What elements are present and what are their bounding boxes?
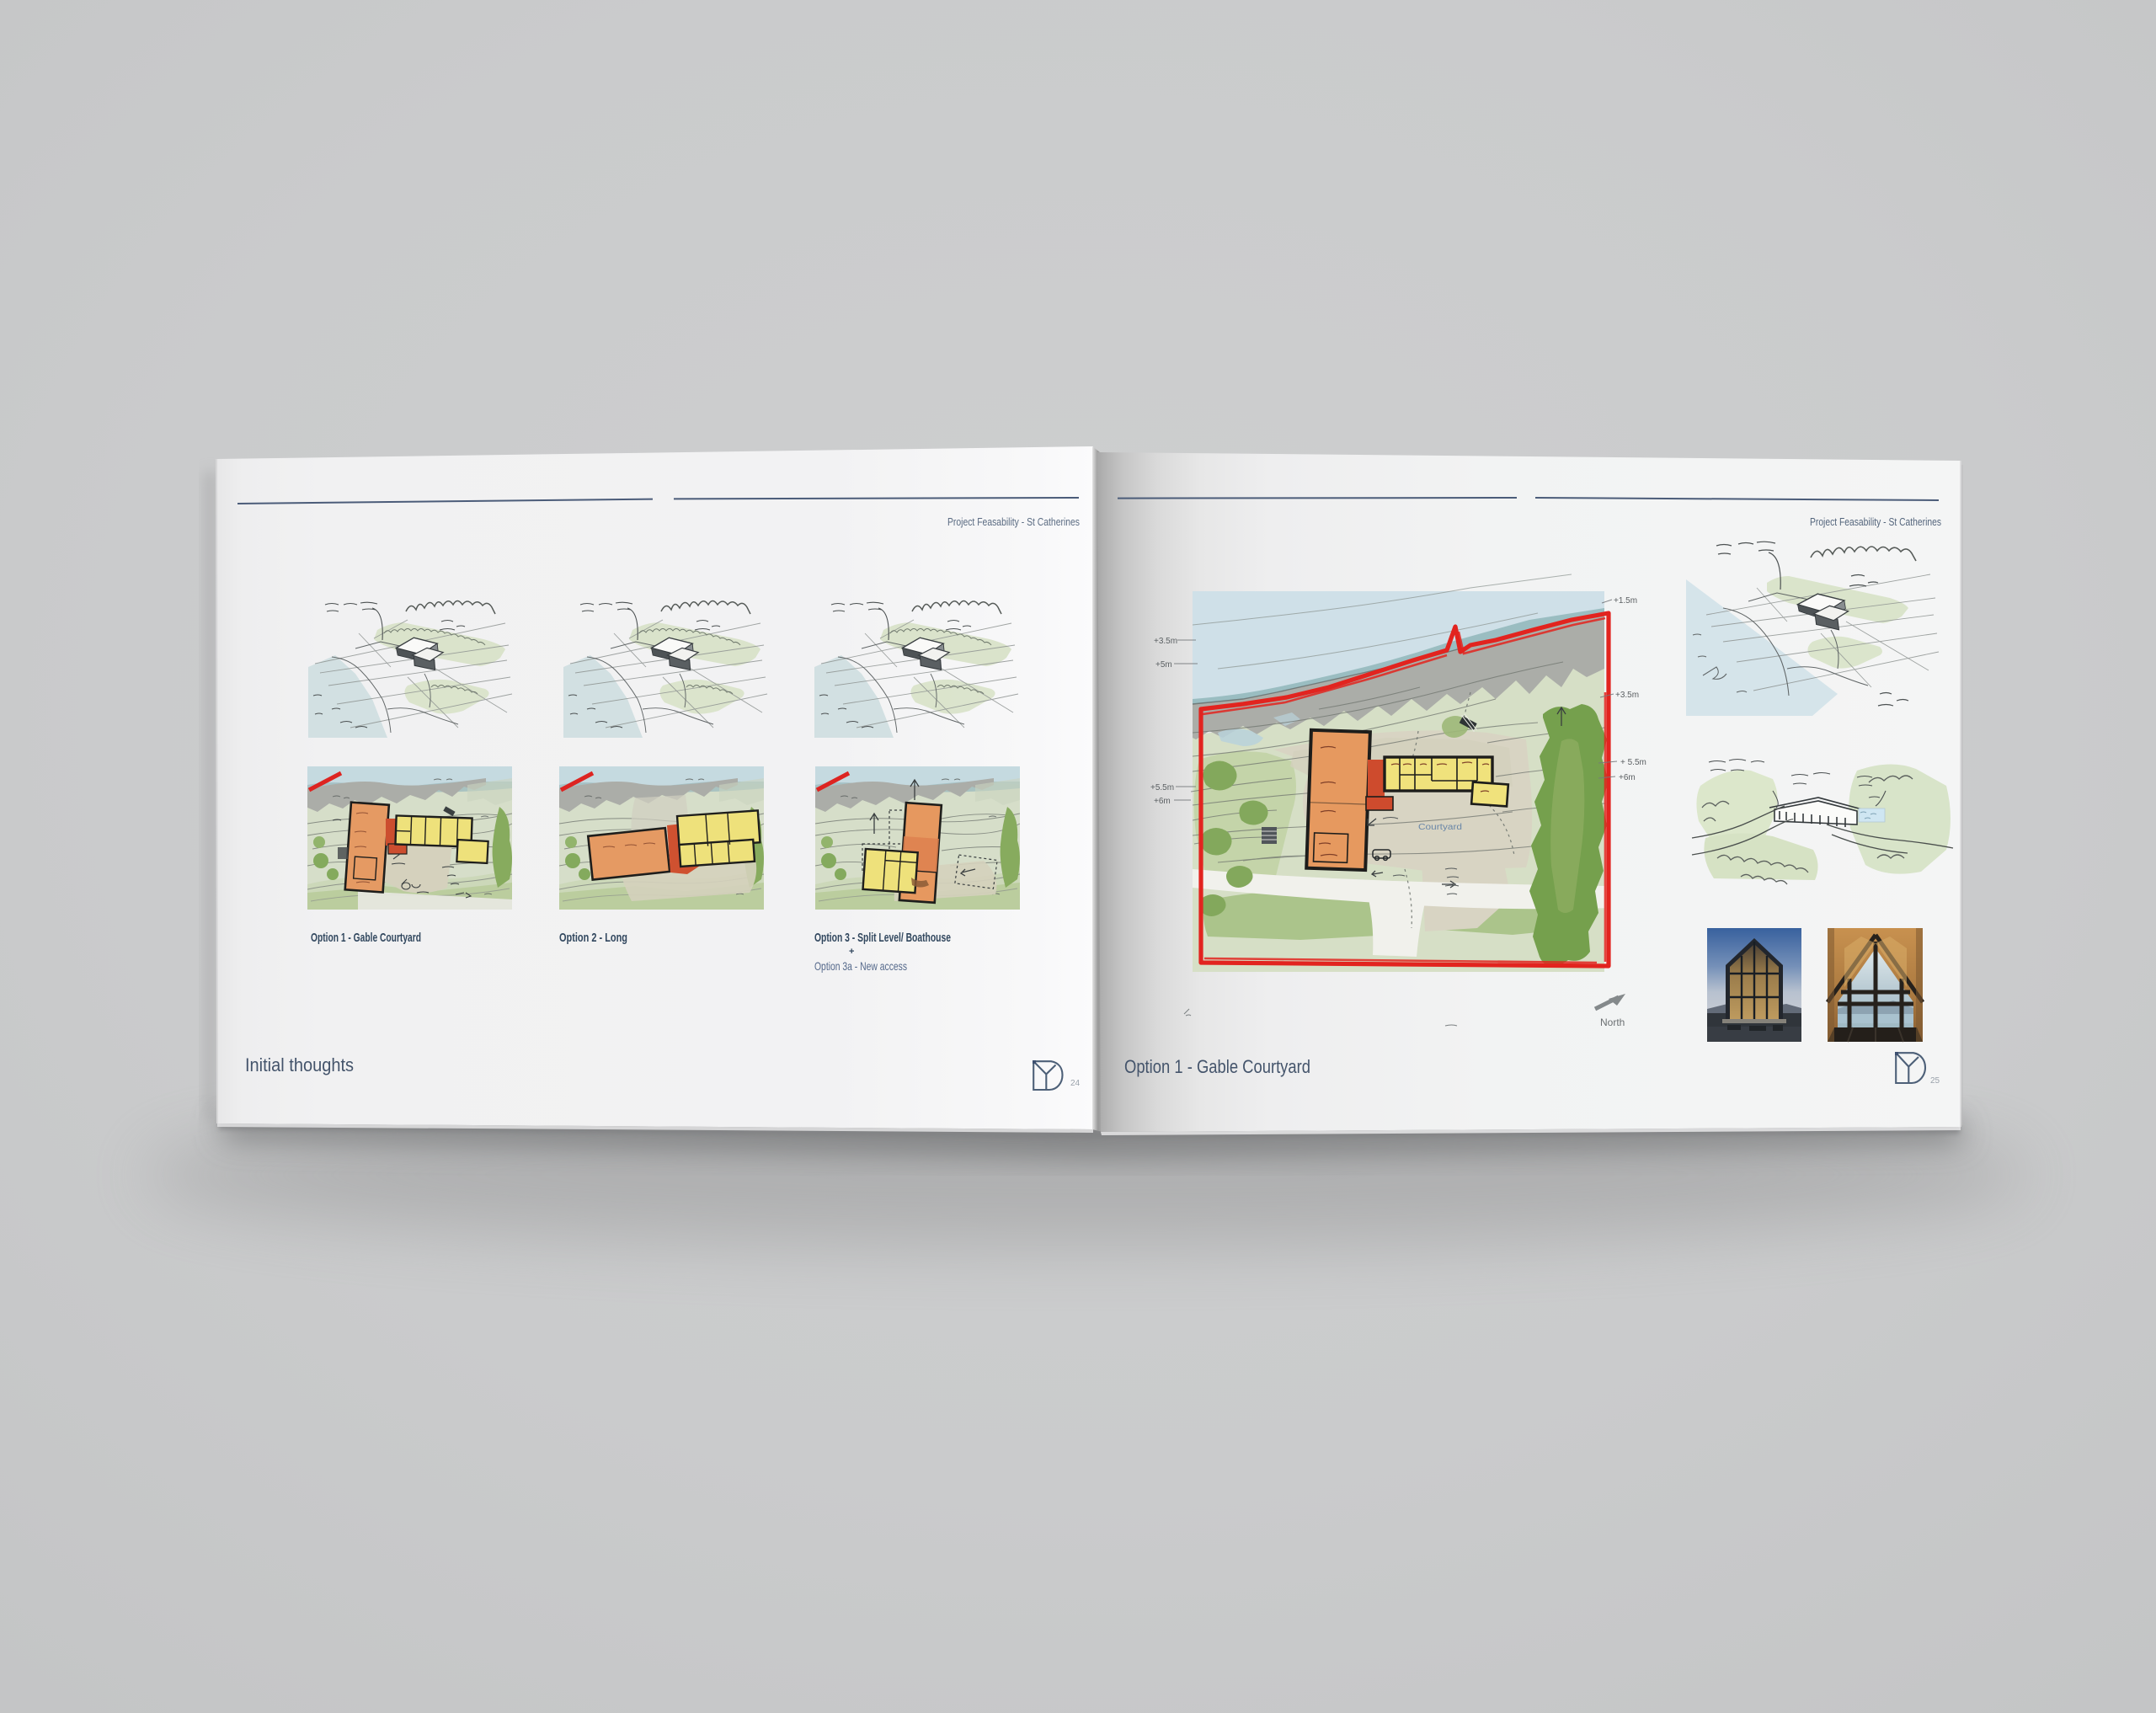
svg-text:+5m: +5m: [1155, 660, 1172, 670]
svg-text:Option 3 - Split Level/ Boatho: Option 3 - Split Level/ Boathouse: [814, 931, 951, 945]
svg-text:+6m: +6m: [1619, 773, 1636, 782]
svg-text:24: 24: [1070, 1079, 1081, 1088]
svg-text:Option 1 - Gable Courtyard: Option 1 - Gable Courtyard: [311, 931, 421, 945]
svg-text:+ 5.5m: + 5.5m: [1620, 758, 1646, 767]
svg-text:Initial thoughts: Initial thoughts: [245, 1054, 354, 1075]
svg-text:Option 3a - New access: Option 3a - New access: [814, 959, 907, 973]
svg-text:Option 1 - Gable Courtyard: Option 1 - Gable Courtyard: [1124, 1056, 1310, 1077]
svg-text:+: +: [849, 947, 854, 957]
svg-text:Courtyard: Courtyard: [1418, 823, 1462, 832]
svg-text:Project Feasability - St Cathe: Project Feasability - St Catherines: [1810, 515, 1941, 528]
svg-text:+6m: +6m: [1154, 797, 1171, 806]
svg-text:+3.5m: +3.5m: [1154, 637, 1177, 646]
svg-text:Project Feasability - St Cathe: Project Feasability - St Catherines: [947, 515, 1080, 528]
svg-text:Option 2 - Long: Option 2 - Long: [559, 931, 627, 945]
svg-text:25: 25: [1930, 1076, 1940, 1086]
svg-text:+3.5m: +3.5m: [1615, 691, 1639, 700]
svg-text:+5.5m: +5.5m: [1150, 783, 1174, 792]
svg-text:North: North: [1600, 1017, 1625, 1028]
svg-text:+1.5m: +1.5m: [1614, 596, 1637, 606]
